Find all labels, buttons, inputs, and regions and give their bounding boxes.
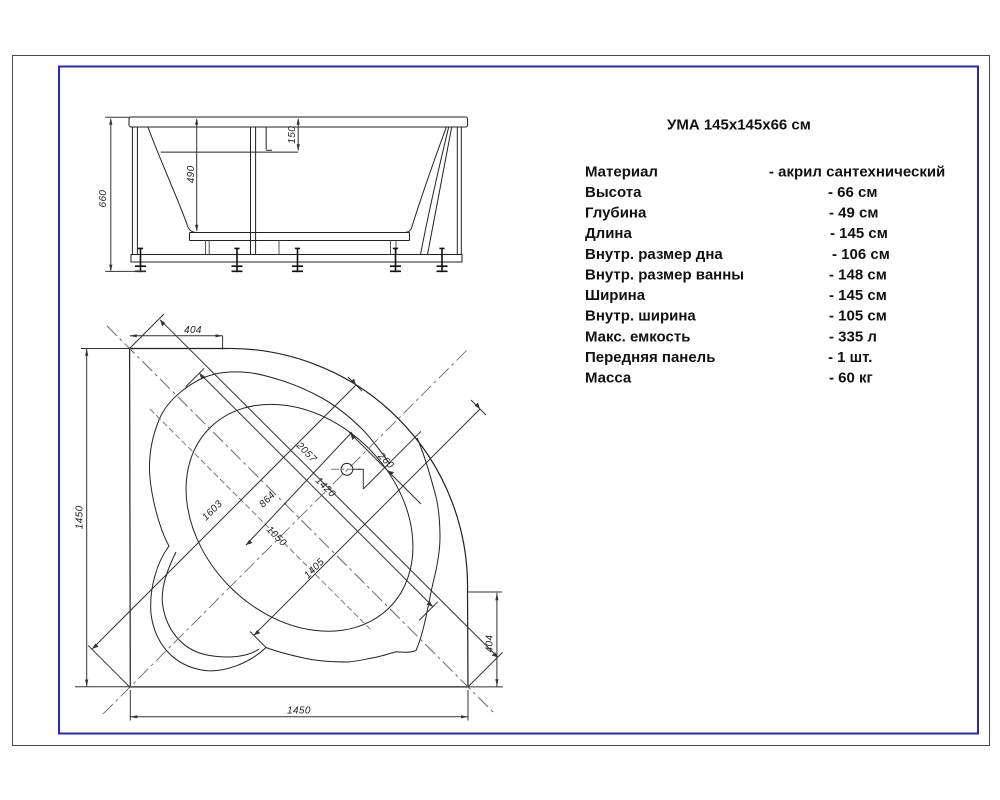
svg-text:864: 864 [257,490,277,510]
svg-text:150: 150 [287,126,298,144]
svg-text:- 335 л: - 335 л [829,328,877,345]
svg-text:Передняя панель: Передняя панель [585,349,715,366]
svg-text:Макс. емкость: Макс. емкость [585,328,690,345]
svg-text:- 145 см: - 145 см [829,287,887,304]
svg-text:- 106 см: - 106 см [832,246,890,263]
svg-text:Глубина: Глубина [585,205,647,222]
svg-text:1050: 1050 [264,524,289,549]
svg-text:1450: 1450 [75,505,86,529]
svg-text:1405: 1405 [302,556,327,581]
svg-text:Внутр. размер дна: Внутр. размер дна [585,246,723,263]
svg-text:1450: 1450 [287,706,311,717]
svg-text:Внутр. размер ванны: Внутр. размер ванны [585,266,744,283]
svg-text:- 66 см: - 66 см [828,184,877,201]
svg-text:- 1 шт.: - 1 шт. [828,349,872,366]
svg-text:Материал: Материал [585,163,658,180]
svg-text:Масса: Масса [585,370,632,387]
svg-text:Длина: Длина [585,225,632,242]
svg-text:Внутр. ширина: Внутр. ширина [585,308,696,325]
svg-text:404: 404 [184,325,202,336]
svg-text:- 105 см: - 105 см [829,308,887,325]
svg-text:1420: 1420 [313,475,338,500]
svg-text:404: 404 [485,635,496,653]
svg-text:- 145 см: - 145 см [830,225,888,242]
svg-text:- 60 кг: - 60 кг [829,370,873,387]
svg-text:УМА 145х145х66 см: УМА 145х145х66 см [667,117,811,134]
svg-text:- 148 см: - 148 см [829,266,887,283]
svg-text:260: 260 [375,450,396,471]
svg-text:660: 660 [98,190,109,208]
svg-text:- акрил сантехнический: - акрил сантехнический [769,163,945,180]
svg-text:- 49 см: - 49 см [829,205,878,222]
svg-text:Высота: Высота [585,184,642,201]
svg-text:490: 490 [186,165,197,183]
svg-text:Ширина: Ширина [585,287,646,304]
